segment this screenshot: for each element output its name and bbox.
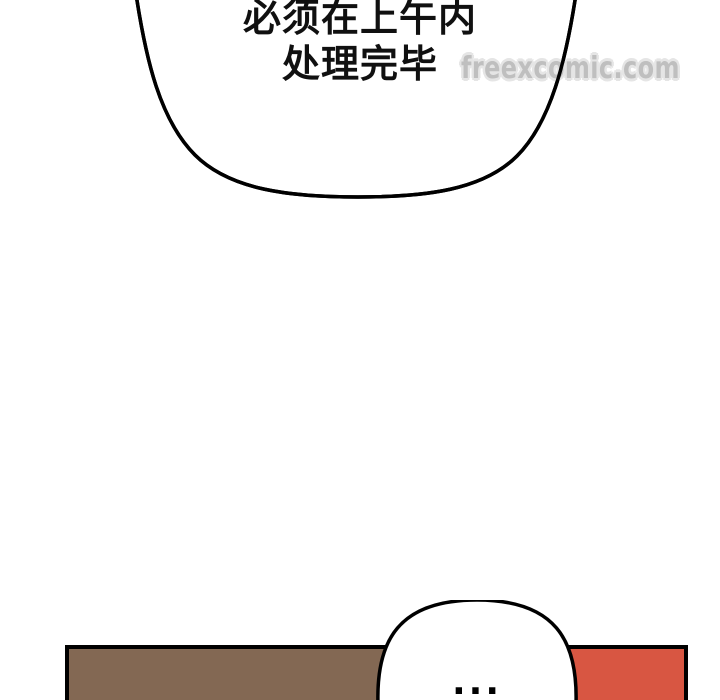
top-bubble-text-line-1: 必须在上午内 bbox=[0, 0, 720, 41]
comic-page: 必须在上午内 处理完毕 freexcomic.com ... bbox=[0, 0, 720, 700]
watermark: freexcomic.com bbox=[461, 51, 680, 86]
bottom-panel-scene: ... bbox=[0, 600, 720, 700]
ellipsis-text: ... bbox=[452, 662, 502, 700]
